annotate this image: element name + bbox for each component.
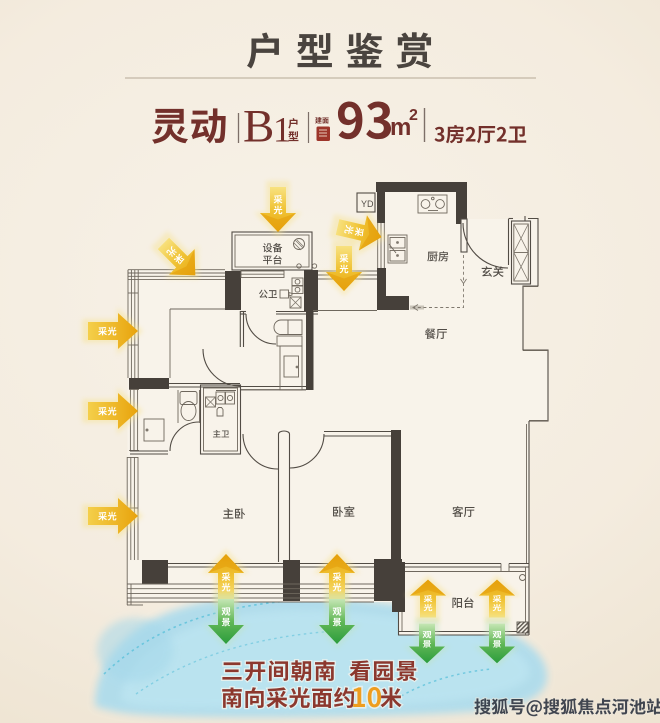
svg-text:YD: YD	[361, 199, 374, 209]
svg-text:B: B	[243, 101, 274, 153]
svg-text:2: 2	[409, 107, 418, 124]
svg-text:1: 1	[273, 110, 291, 150]
